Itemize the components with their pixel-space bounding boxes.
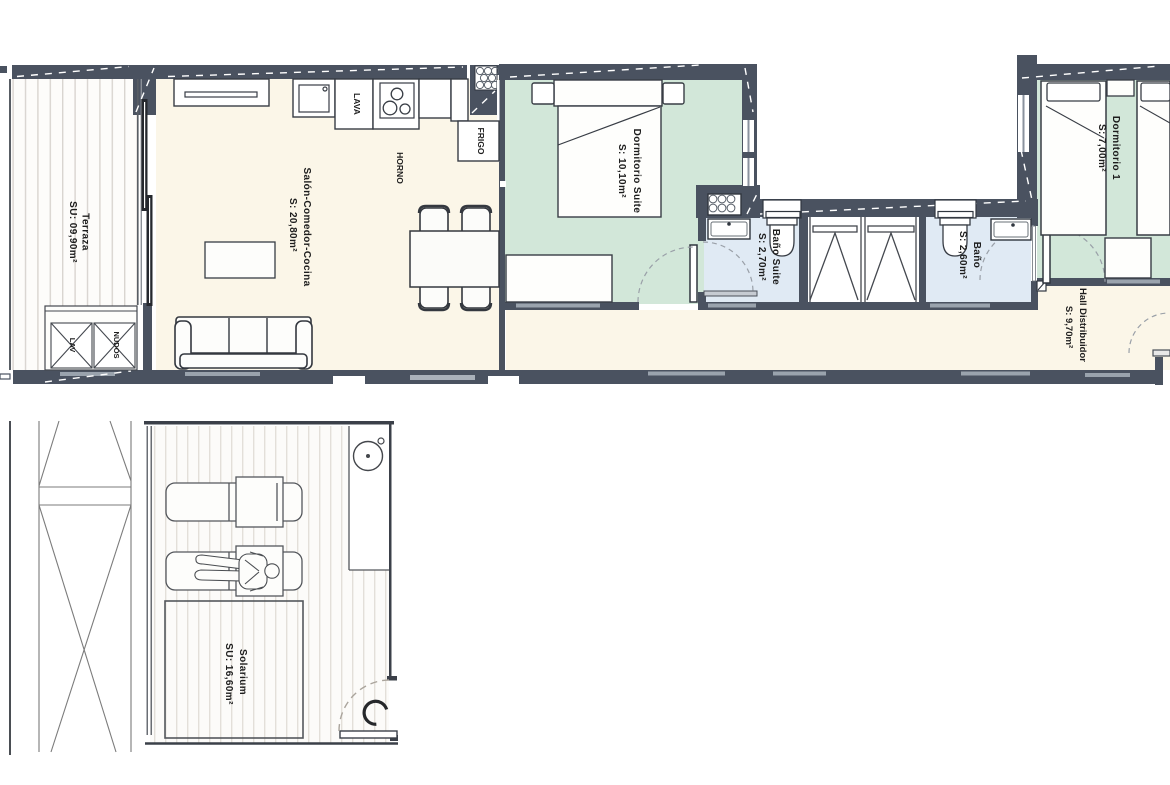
svg-text:S: 9,70m²: S: 9,70m² xyxy=(1063,306,1074,348)
svg-text:NUDOS: NUDOS xyxy=(112,331,121,358)
svg-text:Terraza: Terraza xyxy=(80,213,91,251)
svg-text:FRIGO: FRIGO xyxy=(476,128,486,155)
svg-text:S: 20,80m²: S: 20,80m² xyxy=(287,198,298,252)
svg-text:Dormitorio Suite: Dormitorio Suite xyxy=(631,129,642,214)
svg-text:SU: 16,60m²: SU: 16,60m² xyxy=(223,643,234,705)
svg-text:Dormitorio 1: Dormitorio 1 xyxy=(1110,116,1121,180)
svg-text:LAV: LAV xyxy=(68,338,77,352)
svg-text:Salón-Comedor-Cocina: Salón-Comedor-Cocina xyxy=(301,167,312,286)
svg-text:Hall Distribuidor: Hall Distribuidor xyxy=(1077,288,1088,362)
svg-text:S: 2,70m²: S: 2,70m² xyxy=(756,233,767,281)
svg-text:SU: 09,90m²: SU: 09,90m² xyxy=(67,201,78,263)
svg-text:S: 10,10m²: S: 10,10m² xyxy=(616,144,627,198)
svg-text:Solarium: Solarium xyxy=(237,649,248,695)
svg-text:LAVA: LAVA xyxy=(352,93,362,115)
svg-text:S: 2,60m²: S: 2,60m² xyxy=(957,231,968,279)
svg-text:S: 7,00m²: S: 7,00m² xyxy=(1096,124,1107,172)
svg-text:Baño: Baño xyxy=(971,242,982,269)
svg-text:Baño Suite: Baño Suite xyxy=(770,229,781,285)
svg-text:HORNO: HORNO xyxy=(395,152,405,184)
